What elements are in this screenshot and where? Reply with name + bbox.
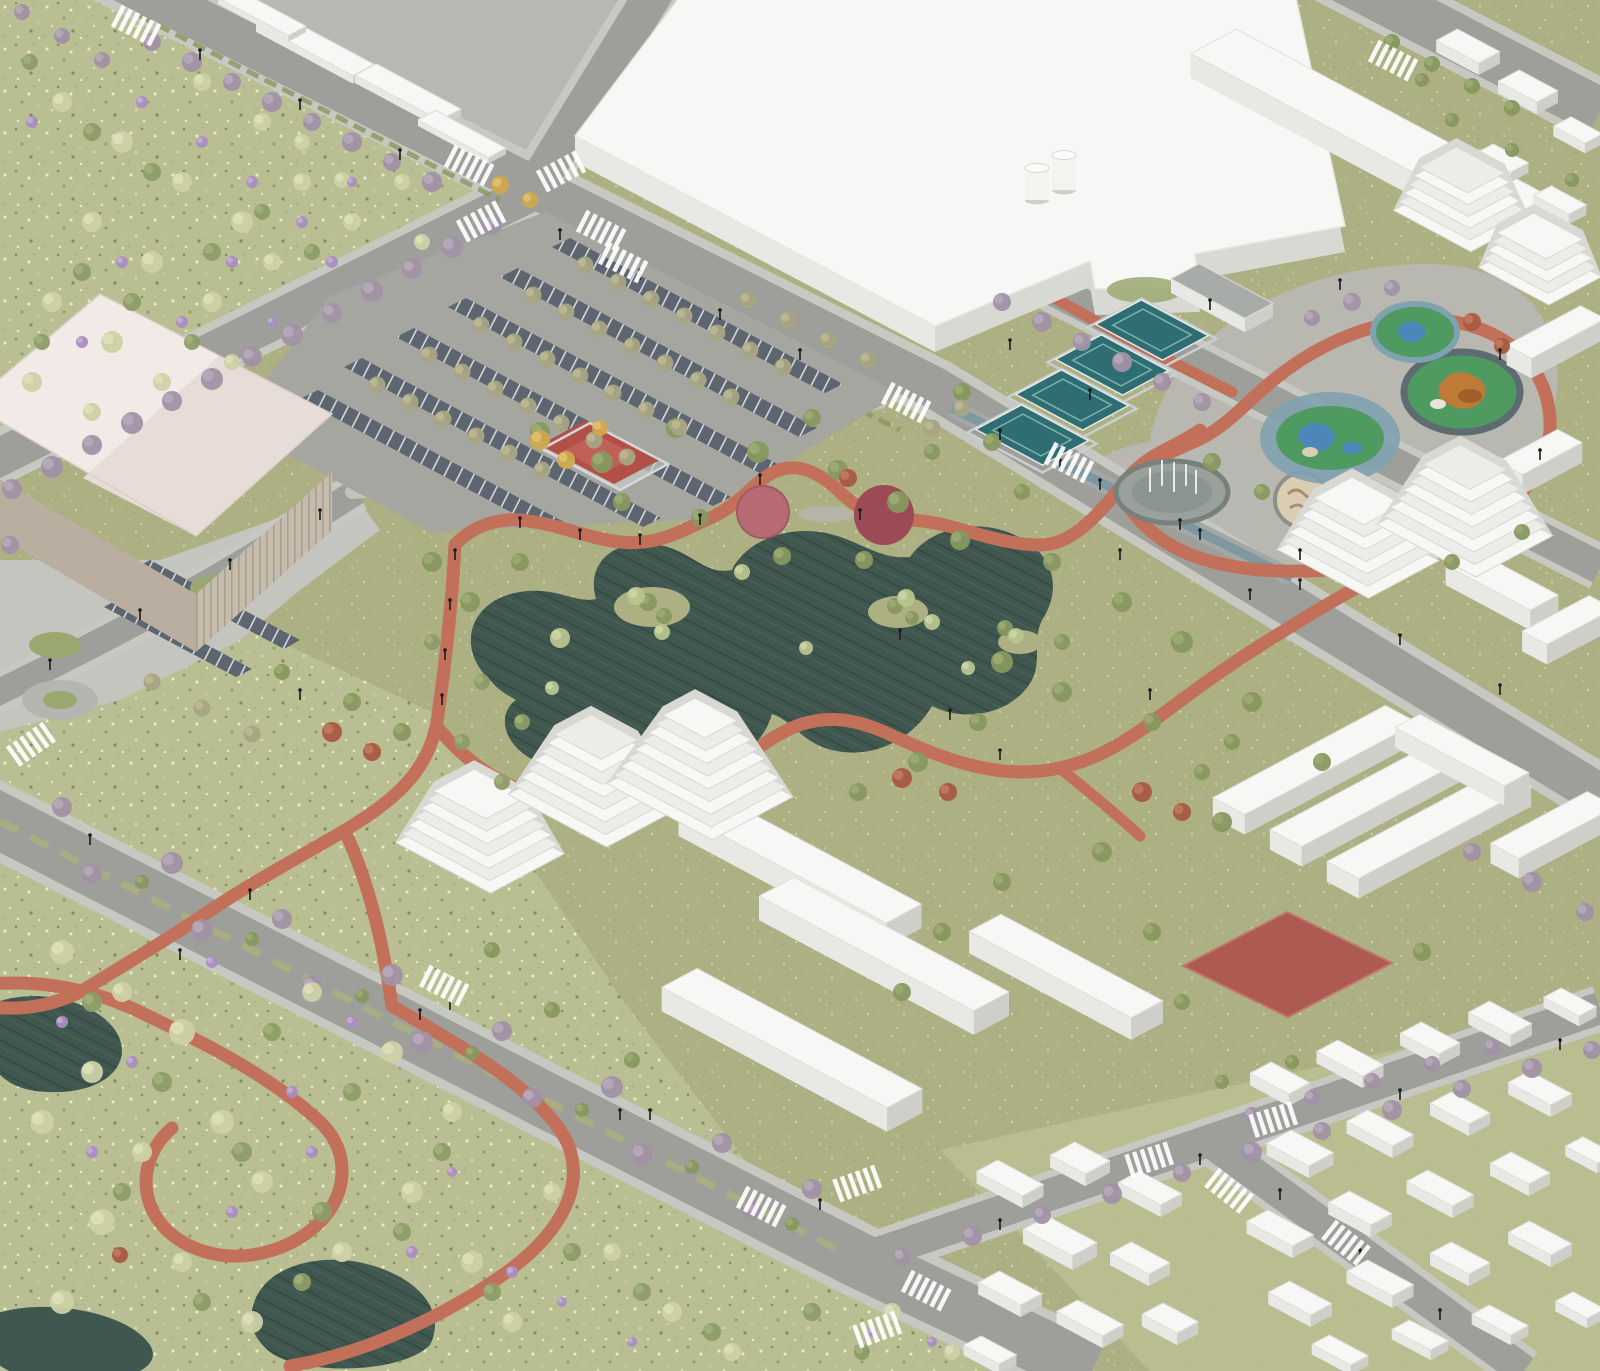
lamp-head bbox=[998, 748, 1002, 752]
shrub-pampas-highlight bbox=[504, 1314, 514, 1324]
tree-olive bbox=[775, 359, 792, 376]
tree-green-highlight bbox=[512, 555, 521, 564]
tree-willow bbox=[924, 614, 940, 630]
tree-green bbox=[969, 713, 987, 731]
tree-purple-blossom bbox=[1382, 1100, 1402, 1120]
lamp-head bbox=[558, 228, 562, 232]
shrub-pampas-highlight bbox=[52, 1292, 64, 1304]
tree-green-highlight bbox=[1144, 925, 1153, 934]
shrub-pampas bbox=[394, 174, 410, 190]
shrub-pampas bbox=[210, 1110, 234, 1134]
tree-green-highlight bbox=[1515, 526, 1523, 534]
shrub-pampas-highlight bbox=[544, 1185, 553, 1194]
tree-purple-blossom bbox=[381, 964, 403, 986]
shrub-pampas-highlight bbox=[174, 174, 184, 184]
tree-olive-highlight bbox=[436, 412, 445, 421]
tree-purple-blossom bbox=[1193, 393, 1211, 411]
tree-purple-blossom-highlight bbox=[1384, 1102, 1394, 1112]
shrub-green bbox=[254, 204, 270, 220]
tree-green bbox=[1043, 553, 1061, 571]
tree-green bbox=[1413, 943, 1431, 961]
tree-olive bbox=[954, 400, 971, 417]
lamp-head bbox=[1298, 548, 1302, 552]
tree-green-highlight bbox=[1465, 80, 1473, 88]
tree-olive-highlight bbox=[488, 382, 497, 391]
tree-green-highlight bbox=[1015, 486, 1023, 494]
shrub-green-highlight bbox=[455, 736, 463, 744]
tree-purple-blossom-highlight bbox=[894, 1250, 903, 1259]
shrub-pampas-highlight bbox=[253, 1173, 264, 1184]
tree-purple-blossom-highlight bbox=[193, 921, 204, 932]
shrub-pampas-highlight bbox=[243, 1313, 254, 1324]
tree-olive bbox=[539, 351, 556, 368]
flower-patch-highlight bbox=[247, 177, 253, 183]
tree-red-maple-highlight bbox=[1134, 784, 1144, 794]
shrub-pampas bbox=[83, 403, 101, 421]
lamp-head bbox=[1338, 278, 1342, 282]
tree-olive-highlight bbox=[587, 433, 596, 442]
tree-purple-blossom-highlight bbox=[964, 1228, 974, 1238]
tree-olive-highlight bbox=[781, 313, 790, 322]
tree-green bbox=[1464, 78, 1480, 94]
tree-olive bbox=[572, 368, 589, 385]
shrub-pampas bbox=[172, 1252, 192, 1272]
tree-green bbox=[1424, 56, 1440, 72]
flower-patch-highlight bbox=[507, 1267, 513, 1273]
tree-purple-blossom-highlight bbox=[714, 1135, 724, 1145]
shrub-pampas bbox=[293, 173, 311, 191]
tree-olive-highlight bbox=[710, 326, 719, 335]
shrub-green bbox=[494, 774, 510, 790]
flower-patch bbox=[246, 176, 258, 188]
tree-green bbox=[1514, 524, 1530, 540]
flower-patch bbox=[176, 316, 188, 328]
flower-patch bbox=[226, 1206, 238, 1218]
shrub-green bbox=[113, 1183, 131, 1201]
tree-purple-blossom bbox=[802, 1179, 822, 1199]
tree-olive bbox=[671, 419, 688, 436]
flower-patch-highlight bbox=[628, 1338, 633, 1343]
tree-green bbox=[1254, 484, 1270, 500]
tree-green bbox=[905, 611, 919, 625]
tree-olive bbox=[780, 312, 797, 329]
tree-purple-blossom bbox=[1522, 1058, 1542, 1078]
tree-willow-highlight bbox=[546, 682, 553, 689]
shrub-green-highlight bbox=[74, 265, 83, 274]
tree-olive-highlight bbox=[455, 365, 464, 374]
tree-olive-highlight bbox=[639, 403, 648, 412]
tree-green bbox=[1092, 842, 1112, 862]
flower-patch-highlight bbox=[327, 257, 333, 263]
shrub-pampas bbox=[172, 172, 192, 192]
tree-green bbox=[613, 493, 631, 511]
tree-green bbox=[849, 783, 867, 801]
tree-green-highlight bbox=[1054, 684, 1064, 694]
shrub-pampas-highlight bbox=[334, 1244, 344, 1254]
lamp-head bbox=[1438, 1308, 1442, 1312]
flower-patch bbox=[286, 1086, 298, 1098]
tree-green bbox=[656, 608, 672, 624]
lamp-head bbox=[1248, 588, 1252, 592]
tree-olive-highlight bbox=[469, 429, 478, 438]
tree-green bbox=[924, 444, 940, 460]
tree-green-highlight bbox=[1204, 455, 1213, 464]
tree-willow bbox=[545, 681, 559, 695]
tree-purple-blossom bbox=[262, 92, 282, 112]
lamp-head bbox=[818, 1198, 822, 1202]
flower-patch bbox=[116, 256, 128, 268]
shrub-green-highlight bbox=[144, 165, 153, 174]
tree-purple-blossom-highlight bbox=[494, 1023, 504, 1033]
tree-yellow bbox=[522, 192, 538, 208]
tree-purple-blossom-highlight bbox=[1577, 905, 1586, 914]
tree-purple-blossom bbox=[492, 1021, 512, 1041]
tree-green bbox=[465, 1046, 479, 1060]
tree-purple-blossom bbox=[182, 52, 202, 72]
tree-purple-blossom-highlight bbox=[55, 30, 63, 38]
tree-olive bbox=[558, 304, 575, 321]
flower-patch bbox=[206, 956, 218, 968]
tree-yellow-highlight bbox=[532, 432, 542, 442]
tree-olive-highlight bbox=[925, 421, 934, 430]
shrub-green-highlight bbox=[234, 1144, 244, 1154]
tree-olive-highlight bbox=[691, 373, 700, 382]
tree-olive bbox=[487, 381, 504, 398]
shrub-pampas-highlight bbox=[32, 1112, 44, 1124]
tree-olive bbox=[520, 398, 537, 415]
flower-patch-highlight bbox=[117, 257, 123, 263]
shrub-pampas bbox=[89, 1209, 115, 1235]
tree-green bbox=[685, 1160, 699, 1174]
tree-green bbox=[983, 433, 1001, 451]
lamp-head bbox=[898, 628, 902, 632]
lamp-head bbox=[1088, 388, 1092, 392]
tree-red-maple-highlight bbox=[1174, 805, 1183, 814]
tree-olive-highlight bbox=[821, 333, 830, 342]
tree-green-highlight bbox=[856, 553, 865, 562]
tree-purple-blossom bbox=[162, 391, 182, 411]
shrub-green-highlight bbox=[255, 206, 263, 214]
lamp-head bbox=[1148, 688, 1152, 692]
shrub-pampas bbox=[22, 372, 42, 392]
tree-olive-highlight bbox=[672, 420, 681, 429]
tree-red-maple bbox=[1494, 338, 1510, 354]
flower-patch-highlight bbox=[348, 178, 353, 183]
site-plan-canvas bbox=[0, 0, 1600, 1371]
lamp-head bbox=[1398, 633, 1402, 637]
tree-green bbox=[1203, 453, 1221, 471]
shrub-green bbox=[203, 243, 221, 261]
tree-purple-blossom-highlight bbox=[1314, 1124, 1323, 1133]
tree-green-highlight bbox=[1506, 144, 1513, 151]
shrub-pampas-highlight bbox=[113, 133, 124, 144]
tree-purple-blossom-highlight bbox=[1154, 375, 1163, 384]
tree-purple-blossom-highlight bbox=[95, 54, 103, 62]
tree-purple-blossom bbox=[41, 456, 63, 478]
tree-green-highlight bbox=[1244, 694, 1254, 704]
shrub-green-highlight bbox=[194, 1295, 203, 1304]
shrub-pampas bbox=[294, 134, 310, 150]
tree-green bbox=[1112, 592, 1132, 612]
tree-olive-highlight bbox=[526, 288, 535, 297]
tree-olive-highlight bbox=[743, 343, 752, 352]
tree-green-highlight bbox=[466, 1047, 473, 1054]
tree-willow-highlight bbox=[925, 616, 933, 624]
flower-patch bbox=[447, 1167, 457, 1177]
shrub-green-highlight bbox=[484, 1285, 493, 1294]
tree-green-highlight bbox=[984, 435, 993, 444]
tree-olive bbox=[435, 411, 452, 428]
tree-olive-highlight bbox=[245, 727, 254, 736]
flower-patch bbox=[26, 116, 38, 128]
lamp-head bbox=[398, 148, 402, 152]
shrub-green-highlight bbox=[23, 56, 31, 64]
tree-olive-highlight bbox=[145, 675, 154, 684]
shrub-green-highlight bbox=[564, 1245, 573, 1254]
shrub-pampas bbox=[132, 1142, 152, 1162]
shrub-pampas-highlight bbox=[83, 1063, 94, 1074]
shrub-green-highlight bbox=[124, 295, 133, 304]
tree-green-highlight bbox=[1425, 58, 1433, 66]
lamp-head bbox=[1398, 1088, 1402, 1092]
flower-patch-highlight bbox=[268, 318, 273, 323]
tree-olive bbox=[740, 292, 757, 309]
tree-olive-highlight bbox=[474, 318, 483, 327]
tree-purple-blossom-highlight bbox=[4, 481, 14, 491]
tree-olive bbox=[553, 415, 570, 432]
tree-willow-highlight bbox=[962, 662, 969, 669]
shrub-green-highlight bbox=[394, 1225, 403, 1234]
shrub-pampas bbox=[723, 1343, 741, 1361]
tree-purple-blossom-highlight bbox=[404, 261, 414, 271]
tree-green-highlight bbox=[1414, 945, 1423, 954]
flower-patch bbox=[86, 1146, 98, 1158]
shrub-pampas-highlight bbox=[463, 1253, 474, 1264]
shrub-green bbox=[703, 1323, 721, 1341]
tree-olive-highlight bbox=[559, 305, 568, 314]
tree-purple-blossom-highlight bbox=[274, 911, 284, 921]
tree-green-highlight bbox=[830, 462, 840, 472]
flower-patch bbox=[226, 256, 238, 268]
tree-olive bbox=[643, 291, 660, 308]
tree-olive bbox=[402, 394, 419, 411]
shrub-pampas bbox=[82, 212, 102, 232]
tree-purple-blossom bbox=[322, 303, 342, 323]
lamp-head bbox=[1008, 338, 1012, 342]
shrub-pampas-highlight bbox=[91, 1212, 104, 1225]
tree-purple-blossom bbox=[1484, 1039, 1500, 1055]
shrub-green bbox=[82, 992, 102, 1012]
flower-patch-highlight bbox=[558, 1298, 563, 1303]
tree-purple-blossom-highlight bbox=[1425, 1058, 1433, 1066]
shrub-pampas-highlight bbox=[171, 1022, 184, 1035]
flower-patch-highlight bbox=[197, 137, 203, 143]
lamp-head bbox=[418, 1008, 422, 1012]
flower-patch bbox=[406, 1246, 418, 1258]
tree-olive bbox=[709, 325, 726, 342]
tree-green-highlight bbox=[1094, 844, 1104, 854]
tree-purple-blossom-highlight bbox=[163, 854, 174, 865]
tree-purple-blossom bbox=[52, 797, 72, 817]
tree-purple-blossom bbox=[1032, 312, 1052, 332]
tree-purple-blossom bbox=[281, 324, 303, 346]
shrub-pampas bbox=[153, 373, 171, 391]
tree-green bbox=[460, 592, 480, 612]
tree-green-highlight bbox=[356, 990, 363, 997]
tree-green-highlight bbox=[136, 876, 143, 883]
tree-olive bbox=[619, 449, 636, 466]
shrub-pampas-highlight bbox=[335, 174, 343, 182]
shrub-green-highlight bbox=[35, 336, 43, 344]
tree-olive bbox=[924, 420, 941, 437]
shrub-pampas-highlight bbox=[403, 1183, 414, 1194]
tree-olive-highlight bbox=[644, 292, 653, 301]
tree-green-highlight bbox=[1314, 755, 1323, 764]
tree-green-highlight bbox=[1446, 114, 1453, 121]
tree-purple-blossom bbox=[893, 1248, 911, 1266]
toddler-playground bbox=[1373, 304, 1457, 360]
tree-purple-blossom-highlight bbox=[283, 326, 294, 337]
tree-olive bbox=[820, 332, 837, 349]
tree-olive-highlight bbox=[554, 416, 563, 425]
shrub-pampas-highlight bbox=[212, 1112, 224, 1124]
shrub-green-highlight bbox=[804, 1305, 813, 1314]
tree-green bbox=[1143, 713, 1161, 731]
tree-purple-blossom bbox=[1242, 1142, 1262, 1162]
tree-yellow bbox=[557, 451, 575, 469]
tree-green bbox=[893, 983, 911, 1001]
flower-patch-highlight bbox=[57, 1017, 63, 1023]
tree-willow bbox=[627, 587, 645, 605]
tree-purple-blossom bbox=[242, 347, 262, 367]
tree-purple-blossom bbox=[1, 536, 19, 554]
tree-purple-blossom bbox=[1463, 843, 1481, 861]
tree-yellow bbox=[530, 430, 550, 450]
lamp-head bbox=[443, 648, 447, 652]
tree-green-highlight bbox=[1286, 1056, 1293, 1063]
lamp-head bbox=[758, 473, 762, 477]
shrub-pampas-highlight bbox=[44, 294, 54, 304]
shrub-green bbox=[563, 1243, 581, 1261]
lamp-head bbox=[998, 428, 1002, 432]
shrub-pampas-highlight bbox=[24, 374, 34, 384]
tree-olive bbox=[468, 428, 485, 445]
tree-green bbox=[1505, 143, 1519, 157]
flower-patch bbox=[346, 1016, 358, 1028]
flower-patch-highlight bbox=[227, 1207, 233, 1213]
shrub-green-highlight bbox=[475, 676, 483, 684]
tree-willow bbox=[961, 661, 975, 675]
tree-olive-highlight bbox=[540, 352, 549, 361]
tree-purple-blossom-highlight bbox=[2, 538, 11, 547]
tree-red-maple bbox=[839, 469, 857, 487]
shrub-pampas bbox=[141, 251, 163, 273]
tree-olive bbox=[657, 355, 674, 372]
shrub-pampas-highlight bbox=[254, 115, 263, 124]
shrub-green bbox=[424, 634, 440, 650]
shrub-green-highlight bbox=[434, 1145, 443, 1154]
tree-purple-blossom bbox=[361, 280, 383, 302]
tree-olive-highlight bbox=[578, 258, 587, 267]
shrub-pampas-highlight bbox=[395, 176, 403, 184]
shrub-green bbox=[193, 1293, 211, 1311]
flower-patch bbox=[126, 1056, 138, 1068]
tree-olive bbox=[194, 700, 211, 717]
shrub-pampas bbox=[343, 213, 361, 231]
tree-yellow bbox=[491, 176, 509, 194]
tree-red-maple bbox=[1132, 782, 1152, 802]
tree-purple-blossom-highlight bbox=[1114, 354, 1124, 364]
tree-purple-blossom-highlight bbox=[384, 155, 393, 164]
tree-purple-blossom-highlight bbox=[184, 54, 194, 64]
lamp-head bbox=[858, 508, 862, 512]
shrub-green bbox=[312, 1202, 332, 1222]
tree-green bbox=[245, 932, 259, 946]
tree-green bbox=[274, 664, 290, 680]
tree-green-highlight bbox=[954, 385, 963, 394]
shrub-green bbox=[22, 54, 38, 70]
shrub-green-highlight bbox=[634, 1285, 643, 1294]
tree-olive-highlight bbox=[724, 390, 733, 399]
tree-purple-blossom-highlight bbox=[344, 134, 354, 144]
shrub-green bbox=[433, 1143, 451, 1161]
tree-green-highlight bbox=[1195, 766, 1203, 774]
tree-willow bbox=[799, 641, 813, 655]
lamp-head bbox=[228, 558, 232, 562]
tree-purple-blossom-highlight bbox=[264, 94, 274, 104]
shrub-green bbox=[343, 1083, 361, 1101]
tree-purple-blossom-highlight bbox=[1454, 1082, 1463, 1091]
tree-willow-highlight bbox=[1009, 630, 1017, 638]
tree-green-highlight bbox=[1416, 74, 1423, 81]
shrub-green bbox=[83, 123, 101, 141]
tree-red-maple bbox=[939, 783, 957, 801]
tree-purple-blossom-highlight bbox=[524, 1090, 534, 1100]
shrub-pampas bbox=[662, 1302, 682, 1322]
shrub-pampas bbox=[381, 1041, 403, 1063]
tree-olive bbox=[676, 308, 693, 325]
tree-green bbox=[1242, 692, 1262, 712]
lamp-head bbox=[178, 948, 182, 952]
tree-red-maple bbox=[1463, 313, 1481, 331]
flower-patch-highlight bbox=[127, 1057, 133, 1063]
lamp-head bbox=[998, 1218, 1002, 1222]
tree-red-maple-highlight bbox=[1495, 340, 1503, 348]
tree-green bbox=[887, 491, 909, 513]
tree-olive-highlight bbox=[573, 369, 582, 378]
shrub-green bbox=[232, 1142, 252, 1162]
shrub-pampas bbox=[193, 73, 211, 91]
tree-green bbox=[393, 723, 411, 741]
shrub-pampas-highlight bbox=[415, 236, 423, 244]
tree-olive-highlight bbox=[861, 353, 870, 362]
tree-green bbox=[993, 873, 1011, 891]
tree-green bbox=[511, 553, 529, 571]
tree-green-highlight bbox=[993, 653, 1004, 664]
shrub-green-highlight bbox=[84, 994, 94, 1004]
tree-green-highlight bbox=[625, 1054, 633, 1062]
flower-patch-highlight bbox=[287, 1087, 293, 1093]
tree-willow-highlight bbox=[655, 626, 663, 634]
shrub-pampas-highlight bbox=[233, 213, 244, 224]
tree-red-maple bbox=[363, 743, 381, 761]
tree-olive bbox=[501, 445, 518, 462]
lamp-head bbox=[1198, 528, 1202, 532]
tree-olive bbox=[421, 347, 438, 364]
tree-green bbox=[1052, 682, 1072, 702]
tree-green bbox=[747, 441, 769, 463]
tree-green bbox=[135, 875, 149, 889]
